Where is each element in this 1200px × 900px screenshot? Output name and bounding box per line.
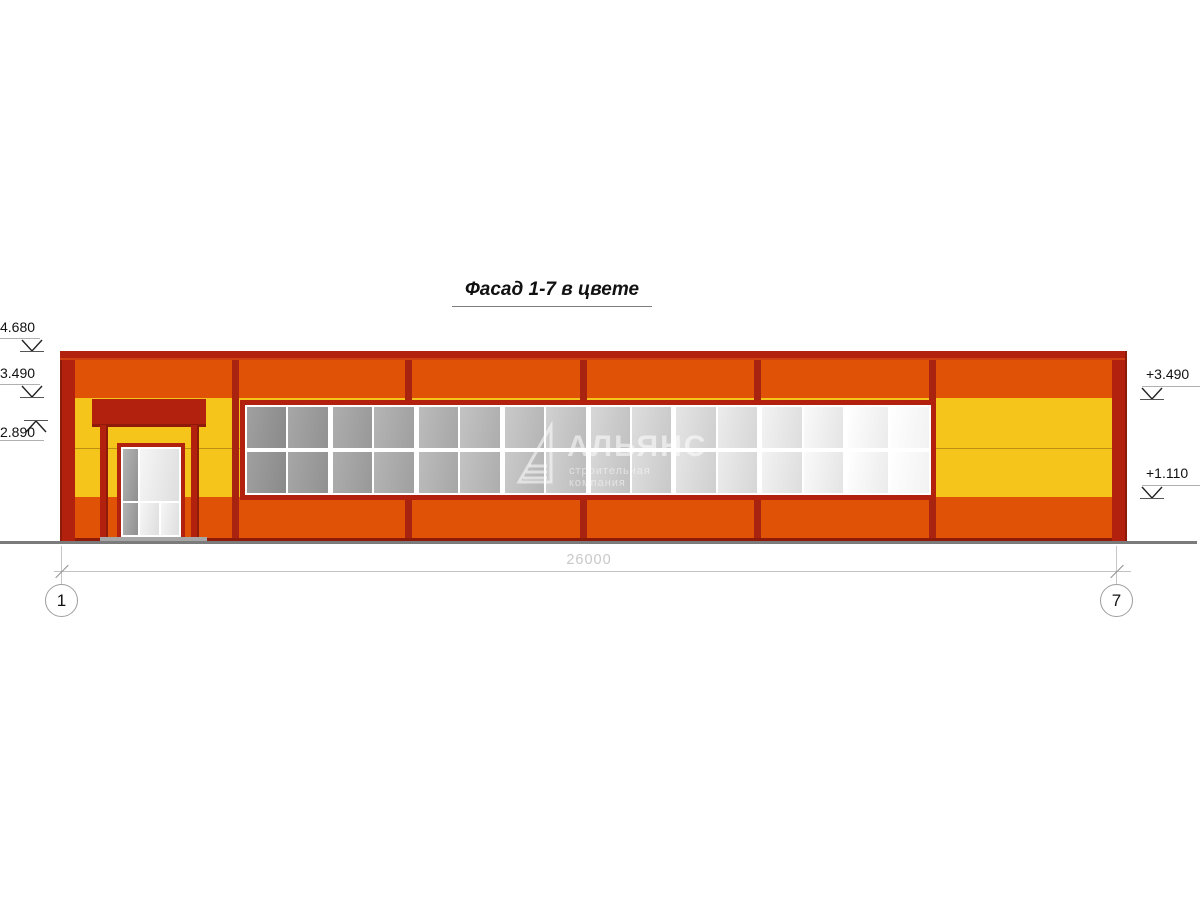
window-pane [333,407,372,448]
elevation-arrow-down-icon [1140,387,1164,401]
door-glass-pane-narrow [123,449,138,501]
window-pane [632,407,671,448]
elevation-arrow-down-icon [20,339,44,353]
window-pane [804,407,843,448]
window-pane [762,452,801,493]
window-pane [374,452,413,493]
dimension-line [54,571,1131,572]
window-pane [632,452,671,493]
window-band [240,400,936,500]
window-pane-pair [762,452,843,493]
building-elevation [60,351,1125,542]
window-pane [333,452,372,493]
drawing-title: Фасад 1-7 в цвете [452,279,652,307]
axis-marker-1: 1 [45,584,78,617]
extension-line-right [1116,546,1117,584]
window-pane [848,452,887,493]
window-pane [804,452,843,493]
window-pane [546,407,585,448]
window-pane-pair [762,407,843,448]
window-pane [288,407,327,448]
drawing-title-text: Фасад 1-7 в цвете [465,279,639,300]
elevation-mark-2890: 2.890 [0,424,35,440]
window-pane-pair [247,452,328,493]
window-pane [419,407,458,448]
door-glass-pane-wide [140,449,179,501]
left-corner-pilaster [60,351,75,542]
door-leafs [123,449,179,535]
window-pane-pair [419,407,500,448]
window-pane [762,407,801,448]
parapet-coping [60,351,1125,360]
extension-line-left [61,546,62,584]
window-pane [848,407,887,448]
lower-orange-band [73,497,1112,538]
axis-number-7: 7 [1112,591,1121,611]
window-pane [676,452,715,493]
door-lower-panel [123,503,138,535]
upper-orange-band [73,360,1112,398]
window-pane-pair [419,452,500,493]
window-pane-pair [333,407,414,448]
window-pane-pair [676,407,757,448]
door-lower-panel [140,503,159,535]
window-pane [460,407,499,448]
window-pane-pair [505,452,586,493]
window-pane [591,407,630,448]
window-pane [718,407,757,448]
entrance-canopy [92,399,206,427]
elevation-mark-1110: +1.110 [1146,465,1188,481]
axis-number-1: 1 [57,591,66,611]
window-pane-pair [333,452,414,493]
window-pane [546,452,585,493]
window-pane-pair [848,407,929,448]
ground-line [0,541,1197,544]
facade-drawing-sheet: Фасад 1-7 в цвете [0,0,1200,900]
window-pane [890,452,929,493]
entrance-door [117,443,185,541]
glazing-grid [245,405,931,495]
window-pane-pair [505,407,586,448]
canopy-post-right [191,425,199,541]
window-pane [247,407,286,448]
window-pane-pair [848,452,929,493]
dimension-label: 26000 [539,552,639,568]
elevation-mark-3490-right: +3.490 [1146,366,1189,382]
window-pane [591,452,630,493]
window-pane [374,407,413,448]
glazing-row-bottom [247,452,929,493]
elevation-arrow-down-icon [20,385,44,399]
canopy-post-left [100,425,108,541]
elevation-leader-line [0,440,44,441]
window-pane-pair [591,407,672,448]
window-pane [505,407,544,448]
window-pane [460,452,499,493]
elevation-arrow-down-icon [1140,486,1164,500]
window-pane [419,452,458,493]
door-lower-panel [161,503,180,535]
window-pane-pair [591,452,672,493]
window-pane [890,407,929,448]
elevation-mark-4680: 4.680 [0,319,35,335]
window-pane [288,452,327,493]
window-pane [247,452,286,493]
column-divider [232,360,239,538]
window-pane-pair [247,407,328,448]
axis-marker-7: 7 [1100,584,1133,617]
window-pane [505,452,544,493]
right-corner-pilaster [1112,351,1127,542]
window-pane-pair [676,452,757,493]
elevation-mark-3490-left: 3.490 [0,365,35,381]
glazing-row-top [247,407,929,448]
window-pane [676,407,715,448]
window-pane [718,452,757,493]
